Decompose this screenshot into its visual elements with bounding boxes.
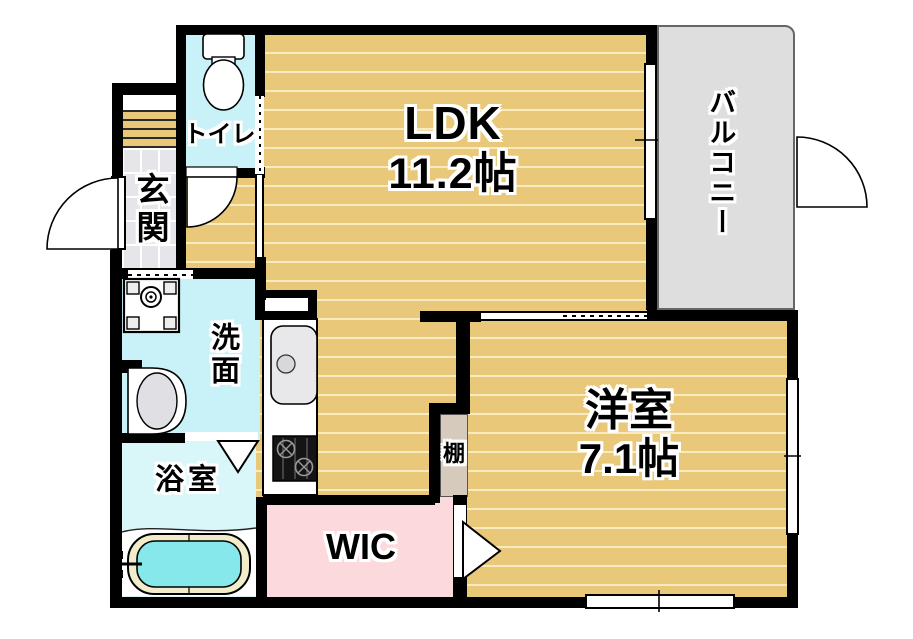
floor-plan: LDK 11.2帖 洋室 7.1帖 バルコニー トイレ 玄関 洗面 浴室 WIC… <box>0 0 913 639</box>
wall <box>787 535 798 608</box>
ldk-name: LDK <box>277 98 629 150</box>
room-label-bathroom: 浴室 <box>118 464 258 496</box>
kitchen-counter-end-slot <box>265 298 308 311</box>
wall <box>112 83 123 178</box>
window-western-bottom <box>585 594 735 609</box>
balcony-door-swing-arc <box>797 137 867 207</box>
wall <box>420 311 481 322</box>
room-label-balcony: バルコニー <box>705 88 735 238</box>
western-room-name: 洋室 <box>462 386 796 435</box>
entry-door-swing-arc <box>47 178 118 249</box>
wall <box>110 433 185 443</box>
western-room-size: 7.1帖 <box>462 435 796 482</box>
sliding-door-western-pocket <box>563 311 647 321</box>
room-label-entrance: 玄関 <box>131 172 168 248</box>
room-label-shelf: 棚 <box>436 442 472 467</box>
wall <box>263 495 435 505</box>
wall <box>118 360 142 373</box>
wall <box>646 35 657 63</box>
bathroom-door-opening <box>185 432 258 441</box>
wall <box>787 310 798 378</box>
wall <box>110 250 122 608</box>
entrance-steps <box>122 110 176 148</box>
wall <box>646 220 657 310</box>
kitchen-counter <box>262 318 318 496</box>
wall <box>112 83 186 95</box>
toilet-floor <box>183 33 256 170</box>
room-label-toilet: トイレ <box>183 122 256 149</box>
wall <box>255 25 265 97</box>
ldk-size: 11.2帖 <box>277 150 629 198</box>
room-label-ldk: LDK 11.2帖 <box>277 98 629 198</box>
window-ldk-balcony <box>644 63 657 220</box>
sliding-door-hall-ldk <box>255 175 264 257</box>
room-label-washroom: 洗面 <box>206 322 238 388</box>
room-label-western-room: 洋室 7.1帖 <box>462 386 796 482</box>
sliding-door-pocket-toilet <box>255 95 264 175</box>
sliding-door-western-track <box>481 311 563 321</box>
wall <box>647 310 798 321</box>
sliding-door-washroom <box>128 270 193 279</box>
entry-door-leaf <box>111 176 126 250</box>
wall <box>177 25 657 35</box>
room-label-wic: WIC <box>266 527 456 567</box>
